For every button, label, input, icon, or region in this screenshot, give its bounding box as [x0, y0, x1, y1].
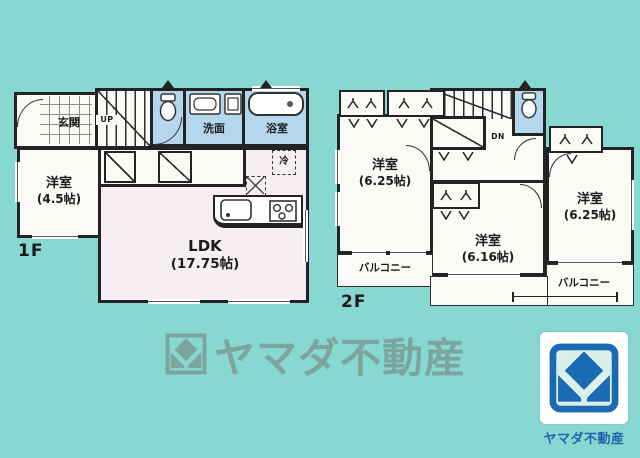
- room-size: (17.75帖): [130, 256, 280, 273]
- closet-door-chevron: [438, 152, 450, 161]
- hanger-icon: [397, 97, 411, 109]
- hanger-icon: [364, 97, 378, 109]
- room-size: (6.25帖): [337, 174, 433, 189]
- floor2-label: 2F: [341, 292, 373, 313]
- closet-door-chevron: [458, 211, 470, 220]
- stairs-dn-label: DN: [487, 132, 509, 141]
- closet-2f-nw-1: [339, 90, 385, 117]
- closet-2f-nw-2: [387, 90, 445, 117]
- closet-door-chevron: [440, 211, 452, 220]
- vanity-sink-icon: [189, 93, 221, 115]
- floorplan-canvas: 玄関 UP 洗面 浴室 洋室 (4.5帖): [0, 0, 640, 458]
- hanger-icon: [420, 97, 434, 109]
- bedroom-2f-east-label: 洋室 (6.25帖): [546, 192, 634, 223]
- kitchen-sink-icon: [220, 199, 252, 221]
- window: [303, 210, 308, 262]
- room-size: (6.16帖): [430, 250, 546, 265]
- landing-diagonal: [433, 119, 483, 147]
- window: [15, 162, 20, 202]
- window: [335, 150, 340, 184]
- closet-door-chevron: [366, 119, 378, 128]
- yamada-watermark-logo-icon: [164, 331, 208, 377]
- window: [558, 260, 622, 265]
- stair-diagonal: [436, 91, 512, 119]
- window: [32, 234, 78, 239]
- toilet-icon: [519, 92, 539, 120]
- closet-2f-center: [432, 182, 480, 209]
- yamada-logo-card: [540, 332, 628, 424]
- vent-arrow-icon: [519, 80, 531, 88]
- vent-arrow-icon: [162, 80, 174, 88]
- window: [448, 272, 520, 277]
- bathtub-icon: [248, 92, 304, 116]
- room-name: 洋室: [17, 176, 101, 192]
- balcony-left-label: バルコニー: [337, 262, 433, 275]
- balcony-2f-right-lower: [430, 276, 548, 306]
- bath-label: 浴室: [254, 122, 300, 136]
- window: [390, 250, 426, 255]
- ldk-label: LDK (17.75帖): [130, 237, 280, 273]
- yamada-logo-caption: ヤマダ不動産: [534, 428, 634, 447]
- closet-door-chevron: [396, 119, 408, 128]
- closet-diagonal: [160, 153, 190, 181]
- hanger-icon: [558, 133, 572, 145]
- closet-1f-left: [104, 151, 136, 183]
- closet-door-chevron: [462, 152, 474, 161]
- stair-landing-2f: [430, 116, 486, 150]
- window: [228, 299, 290, 304]
- watermark-text: ヤマダ不動産: [214, 324, 466, 384]
- closet-door-chevron: [418, 119, 430, 128]
- balcony-right-label: バルコニー: [548, 277, 620, 290]
- closet-door-chevron: [348, 119, 360, 128]
- window: [629, 180, 634, 230]
- floor-hatch-box: [246, 176, 266, 196]
- stair-treads-2f: [436, 91, 512, 119]
- room-size: (4.5帖): [17, 192, 101, 207]
- hanger-icon: [346, 97, 360, 109]
- genkan-label: 玄関: [46, 116, 92, 130]
- stairs-up-label: UP: [96, 115, 118, 125]
- room-name: LDK: [130, 237, 280, 256]
- vent-arrow-icon: [260, 80, 272, 88]
- senmen-label: 洗面: [190, 122, 238, 136]
- stove-icon: [269, 200, 297, 222]
- bedroom-1f-label: 洋室 (4.5帖): [17, 176, 101, 207]
- hanger-icon: [580, 133, 594, 145]
- floor1-label: 1F: [18, 241, 48, 262]
- window: [335, 192, 340, 226]
- bedroom-2f-center-label: 洋室 (6.16帖): [430, 234, 546, 265]
- fridge-label: 冷: [272, 156, 296, 168]
- window: [352, 250, 386, 255]
- closet-2f-east: [549, 126, 603, 153]
- balcony-rail: [512, 296, 618, 297]
- hanger-icon: [459, 189, 473, 201]
- hanger-icon: [439, 189, 453, 201]
- yamada-logo-icon: [547, 339, 621, 417]
- room-name: 洋室: [430, 234, 546, 250]
- hatch-x-pattern: [247, 177, 264, 194]
- watermark: ヤマダ不動産: [164, 324, 466, 384]
- washer-icon: [224, 93, 242, 115]
- closet-diagonal: [106, 153, 134, 181]
- window: [148, 299, 200, 304]
- closet-1f-right: [158, 151, 192, 183]
- room-name: 洋室: [546, 192, 634, 208]
- room-size: (6.25帖): [546, 208, 634, 223]
